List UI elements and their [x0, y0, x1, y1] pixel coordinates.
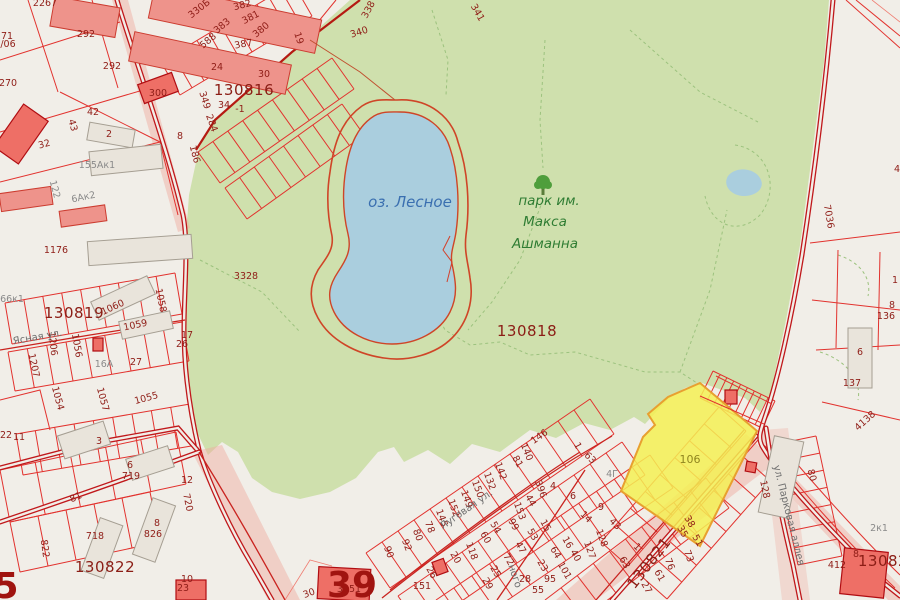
parcel-number: 6 — [857, 347, 863, 358]
selected-parcel-label: 106 — [680, 453, 701, 466]
parcel-number: 292 — [77, 29, 95, 40]
address-number: 2к1 — [870, 523, 888, 534]
parcel-number: 1 — [892, 275, 898, 286]
parcel-number: 42 — [87, 107, 99, 118]
address-number: 4Г — [606, 469, 618, 480]
parcel-number: 151 — [413, 581, 431, 592]
park-name: Ашманна — [511, 236, 578, 252]
address-number: 155Ак1 — [79, 160, 115, 171]
parcel-number: 292 — [103, 61, 121, 72]
parcel-number: 23 — [177, 583, 189, 594]
address-number: 66к1 — [0, 294, 24, 305]
parcel-number: 6 — [570, 491, 576, 502]
parcel-number: 24 — [211, 62, 223, 73]
parcel-number: 136 — [877, 311, 895, 322]
parcel-number: 8 — [154, 518, 160, 529]
parcel-number: 718 — [86, 531, 104, 542]
parcel-number: 270 — [0, 78, 17, 89]
map-viewport[interactable]: 226729229230071/06270117642432323328330Б… — [0, 0, 900, 600]
parcel-number: 30 — [258, 69, 270, 80]
parcel-number: 826 — [144, 529, 162, 540]
parcel-number: 12 — [181, 475, 193, 486]
parcel-number: /06 — [0, 39, 15, 50]
park-name: Макса — [523, 214, 567, 230]
quarter-number: 130823 — [858, 552, 900, 570]
address-number: 16А — [95, 359, 114, 370]
parcel-number: 719 — [122, 471, 140, 482]
selected-parcel-number: 106 — [680, 453, 701, 466]
block-number: 5 — [0, 566, 19, 600]
parcel-number: 8 — [889, 300, 895, 311]
parcel-number: 9 — [598, 502, 604, 513]
parcel-number: 300 — [149, 88, 167, 99]
parcel-number: 34 — [218, 100, 230, 111]
parcel-number: 55 — [532, 585, 544, 596]
quarter-number: 130816 — [214, 81, 274, 99]
parcel-number: 8 — [177, 131, 183, 142]
parcel-number: 26 — [176, 339, 188, 350]
parcel-number: -1 — [235, 104, 244, 115]
parcel-number: 3328 — [234, 271, 258, 282]
parcel-number: 412 — [828, 560, 846, 571]
block-number: 39 — [327, 565, 377, 600]
water-name-label: оз. Лесное — [368, 193, 452, 211]
cadastral-map[interactable]: 226729229230071/06270117642432323328330Б… — [0, 0, 900, 600]
park-name: парк им. — [518, 193, 579, 209]
parcel-number: 1176 — [44, 245, 68, 256]
parcel-number: 95 — [544, 574, 556, 585]
parcel-number: 2 — [106, 129, 112, 140]
parcel-number: 2267 — [33, 0, 57, 9]
lake-name: оз. Лесное — [368, 193, 452, 211]
parcel-number: 137 — [843, 378, 861, 389]
quarter-number: 130822 — [75, 558, 135, 576]
quarter-number: 130818 — [497, 322, 557, 340]
parcel-number: 22 — [0, 430, 12, 441]
quarter-number: 130819 — [44, 304, 104, 322]
parcel-number: 6 — [127, 460, 133, 471]
parcel-number: 4 — [550, 481, 556, 492]
parcel-number: 3 — [96, 436, 102, 447]
parcel-number: 11 — [13, 432, 25, 443]
parcel-number: 27 — [130, 357, 142, 368]
parcel-number: 4 — [894, 164, 900, 175]
